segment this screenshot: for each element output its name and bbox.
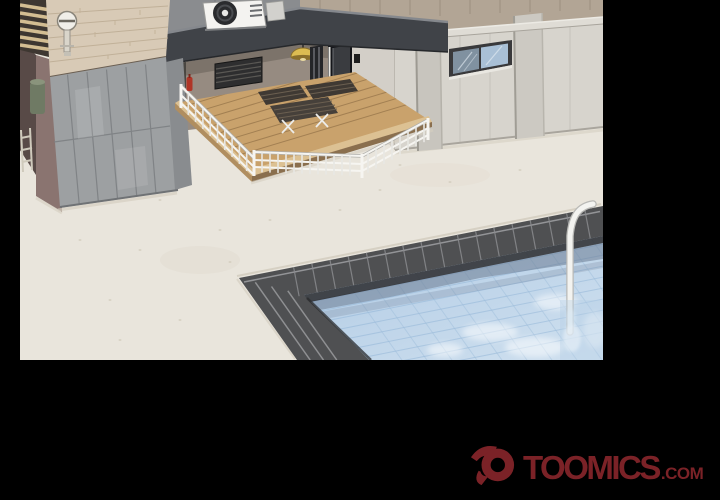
toomics-suffix-text: .COM: [661, 461, 703, 487]
webtoon-page: TOOMICS .COM: [0, 0, 720, 500]
toomics-brand-text: TOOMICS: [523, 449, 659, 487]
scene-illustration: [20, 0, 603, 360]
comic-panel: [20, 0, 603, 360]
left-building: [20, 0, 192, 213]
toomics-logo-icon: [468, 441, 518, 487]
pilaster-right: [514, 13, 544, 139]
gas-cylinder: [30, 79, 45, 114]
toomics-watermark: TOOMICS .COM: [468, 441, 703, 487]
concrete-panel-wall: [50, 57, 192, 210]
